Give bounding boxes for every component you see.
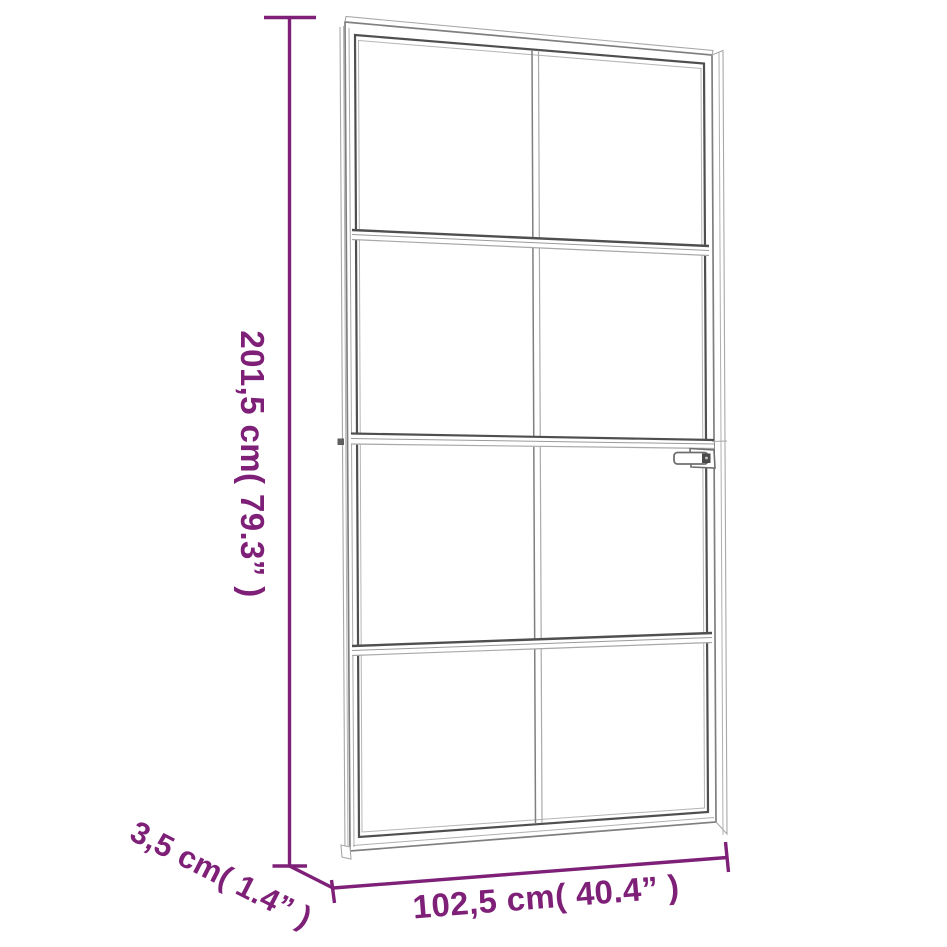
door-right-edge-2 [719, 53, 723, 836]
diagram-canvas [0, 0, 947, 947]
door-right-joint-line [712, 441, 727, 442]
door-bottom-left-foot [341, 845, 351, 859]
handle-spindle-dot [705, 457, 708, 460]
depth-end-tick [332, 880, 335, 903]
dimension-diagram: 201,5 cm( 79.3” ) 102,5 cm( 40.4” ) 3,5 … [0, 0, 947, 947]
width-right-tick [726, 842, 729, 872]
door-left-joint [338, 439, 345, 446]
height-dimension-label: 201,5 cm( 79.3” ) [233, 330, 271, 597]
door-illustration [338, 17, 728, 860]
height-dimension-line [264, 18, 316, 867]
depth-line [290, 866, 334, 888]
